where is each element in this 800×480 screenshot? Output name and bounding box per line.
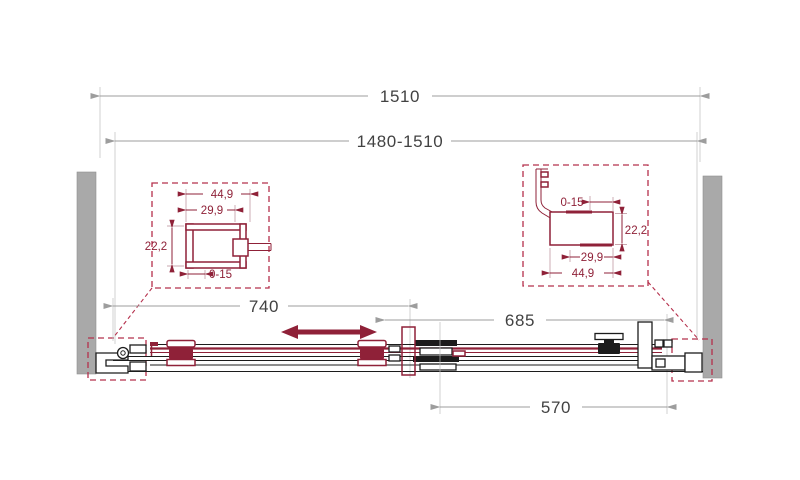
right-profile-section: [550, 211, 613, 247]
adjustable-range-label: 1480-1510: [357, 132, 444, 151]
magnet-profile: [402, 327, 415, 375]
left-profile-detail: 44,9 29,9 22,2 0-15: [145, 183, 271, 288]
right-detail-inner-width-label: 29,9: [581, 252, 603, 264]
fixing-bracket: [389, 355, 400, 361]
right-wall-bracket: [652, 340, 702, 372]
right-wall: [703, 176, 722, 378]
roller-carriage-left: [167, 341, 195, 366]
door-overlap-assembly: [402, 327, 465, 375]
glass-width-label: 570: [541, 398, 571, 417]
roller-carriage-right: [358, 341, 386, 366]
left-wall-bracket: [96, 342, 158, 373]
slide-direction-arrow: [281, 325, 377, 339]
right-detail-leader-line: [648, 282, 699, 340]
left-wall: [77, 172, 96, 374]
fixing-bracket: [389, 346, 400, 352]
left-detail-inner-width-label: 29,9: [201, 205, 223, 217]
technical-drawing-canvas: 1510 1480-1510 44,9 29,9: [0, 0, 800, 480]
right-profile-detail: 0-15 22,2 29,9 44,9: [523, 165, 648, 286]
right-detail-height-label: 22,2: [625, 225, 647, 237]
fixed-panel-roller: [595, 334, 623, 355]
right-detail-adjustment-label: 0-15: [560, 197, 583, 209]
left-stopper: [150, 342, 158, 346]
track-assembly: [96, 322, 703, 375]
left-detail-adjustment-label: 0-15: [209, 269, 232, 281]
fixed-panel-label: 685: [505, 311, 535, 330]
left-detail-leader-line: [113, 288, 152, 338]
handle-bar: [638, 322, 652, 368]
overall-width-label: 1510: [380, 87, 420, 106]
left-wall-profile-section: [186, 224, 271, 268]
left-detail-height-label: 22,2: [145, 241, 167, 253]
drawing-page: 1510 1480-1510 44,9 29,9: [0, 0, 800, 480]
dimension-glass-width: 570: [440, 322, 667, 417]
dimension-fixed-panel: 685: [385, 311, 667, 414]
left-detail-outer-width-label: 44,9: [211, 189, 233, 201]
right-detail-outer-width-label: 44,9: [572, 268, 594, 280]
door-width-label: 740: [249, 297, 279, 316]
